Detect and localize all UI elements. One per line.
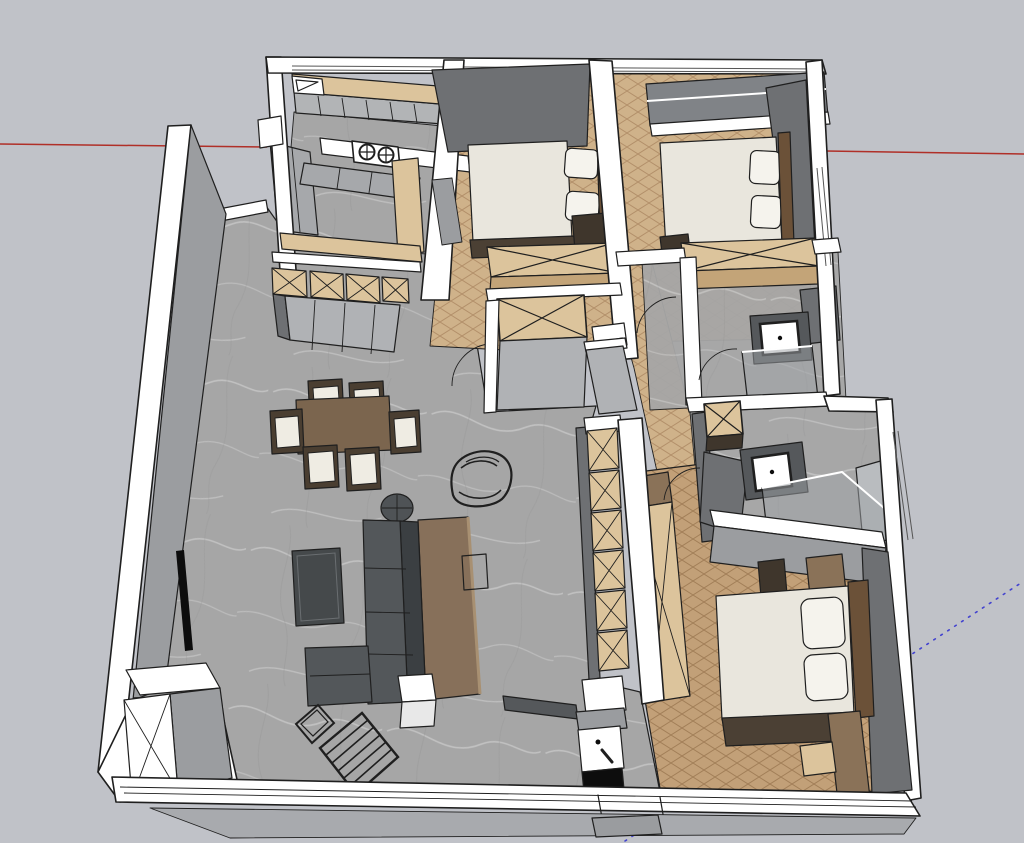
viewport-3d[interactable]: [0, 0, 1024, 843]
dining-chair-bottom-2: [345, 447, 381, 491]
master-stool: [800, 742, 836, 776]
storage-column: [576, 415, 664, 704]
bed-1: [468, 138, 614, 258]
master-bed-pillow-1: [800, 597, 845, 650]
bathroom-1-drain: [778, 336, 782, 340]
bed-2-pillow-2: [750, 195, 782, 229]
bedroom-2-wardrobe: [681, 238, 819, 289]
viewport-background: [0, 0, 1024, 843]
bathroom-2-cube-front: [706, 434, 743, 451]
closet-front: [497, 337, 587, 410]
bathroom-2-storage-cube: [704, 401, 743, 451]
closet-cap-left: [484, 300, 499, 413]
bedroom-1-north-wall-face: [432, 64, 590, 152]
dining-chair-left: [270, 409, 304, 454]
bathroom-2-drain: [770, 470, 774, 474]
red-axis-right-segment: [826, 151, 1024, 154]
coffee-table-top: [292, 548, 344, 626]
entry-step: [592, 815, 662, 837]
coffee-table: [292, 548, 344, 626]
bathroom-1-wall-cap-right: [812, 238, 841, 254]
cube-side-table-top: [398, 674, 436, 702]
cube-side-table-front: [400, 700, 436, 728]
kitchen-west-wall-jog: [258, 116, 283, 148]
kitchen-counter-return: [392, 158, 424, 255]
dining-chair-right: [389, 410, 421, 454]
wash-stand-faucet: [596, 740, 601, 745]
bed-1-mattress: [468, 141, 572, 242]
dining-chair-bottom-1: [303, 445, 339, 489]
bed-1-pillow-1: [564, 148, 599, 179]
dining-table: [296, 396, 392, 454]
master-bed-pillow-2: [803, 653, 848, 702]
blue-axis-upper-segment: [906, 581, 1024, 658]
red-axis-left-segment: [0, 144, 267, 147]
bed-2-pillow-1: [749, 150, 781, 185]
